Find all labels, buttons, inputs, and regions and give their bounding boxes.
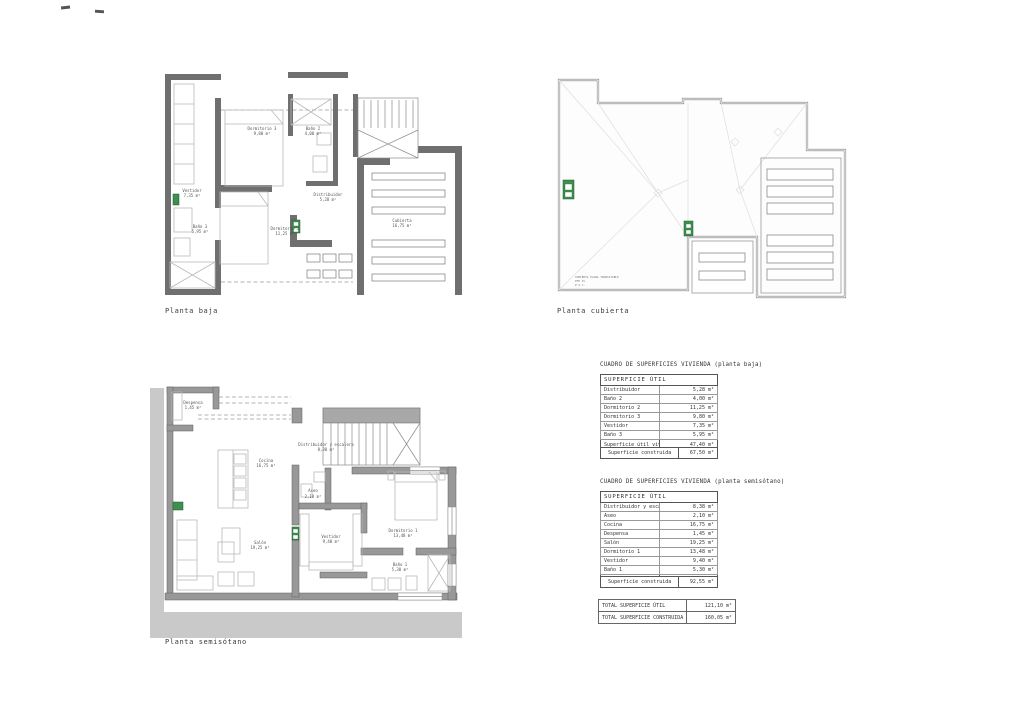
row-value: 7,35 m² xyxy=(659,422,718,431)
row-value: 13,48 m² xyxy=(659,548,718,557)
table-row: Dormitorio 2 11,25 m² xyxy=(601,404,718,413)
room-area: 7,35 m² xyxy=(184,193,201,198)
row-value: 11,25 m² xyxy=(659,404,718,413)
room-area: 4,00 m² xyxy=(305,131,322,136)
semisotano-table-title: CUADRO DE SUPERFICIES VIVIENDA (planta s… xyxy=(600,479,785,485)
baja-pergola-slats xyxy=(307,173,445,281)
room-label: Aseo xyxy=(308,488,318,493)
table-row: TOTAL SUPERFICIE ÚTIL 121,10 m² xyxy=(599,600,736,612)
semisotano-stairs xyxy=(323,408,420,465)
planta-semisotano-title: Planta semisótano xyxy=(165,638,247,646)
row-value: 5,30 m² xyxy=(659,566,718,575)
table-row: Despensa 1,45 m² xyxy=(601,530,718,539)
baja-table-title: CUADRO DE SUPERFICIES VIVIENDA (planta b… xyxy=(600,362,762,368)
row-value: 5,95 m² xyxy=(659,431,718,440)
row-value: 2,10 m² xyxy=(659,512,718,521)
total-construida-label: TOTAL SUPERFICIE CONSTRUIDA xyxy=(599,612,687,624)
room-area: 8,38 m² xyxy=(318,447,335,452)
row-value: 19,25 m² xyxy=(659,539,718,548)
row-label: Baño 2 xyxy=(601,395,660,404)
table-row: Distribuidor y escalera 8,38 m² xyxy=(601,503,718,512)
table-row: Vestidor 7,35 m² xyxy=(601,422,718,431)
row-label: Cocina xyxy=(601,521,660,530)
row-label: Baño 3 xyxy=(601,431,660,440)
room-area: 5,28 m² xyxy=(320,197,337,202)
semisotano-construida-table: Superficie construida 92,55 m² xyxy=(600,576,718,588)
row-label: Despensa xyxy=(601,530,660,539)
semisotano-areas-table: SUPERFICIE ÚTIL Distribuidor y escalera … xyxy=(600,491,718,586)
planta-cubierta-drawing: CUBIERTA PLANA TRANSITABLE PTE 4% P.V.C. xyxy=(555,75,855,300)
row-label: Distribuidor xyxy=(601,386,660,395)
room-area: 13,48 m² xyxy=(393,533,412,538)
table-row: Baño 1 5,30 m² xyxy=(601,566,718,575)
table-row: Aseo 2,10 m² xyxy=(601,512,718,521)
registration-mark-1 xyxy=(61,6,70,9)
table-row: TOTAL SUPERFICIE CONSTRUIDA 160,05 m² xyxy=(599,612,736,624)
room-area: 11,25 m² xyxy=(275,231,294,236)
row-value: 9,80 m² xyxy=(659,413,718,422)
semisotano-terrain xyxy=(150,388,462,638)
room-area: 19,25 m² xyxy=(250,545,269,550)
table-row: Dormitorio 1 13,48 m² xyxy=(601,548,718,557)
table-header-row: SUPERFICIE ÚTIL xyxy=(601,375,718,386)
table-row: Vestidor 9,40 m² xyxy=(601,557,718,566)
construida-label: Superficie construida xyxy=(601,448,679,459)
room-area: 2,10 m² xyxy=(305,494,322,499)
table-row: Baño 2 4,00 m² xyxy=(601,395,718,404)
baja-areas-table: SUPERFICIE ÚTIL Distribuidor 5,28 m² Bañ… xyxy=(600,374,718,451)
table-row: Salón 19,25 m² xyxy=(601,539,718,548)
table-row: Cocina 16,75 m² xyxy=(601,521,718,530)
table-row: Dormitorio 3 9,80 m² xyxy=(601,413,718,422)
row-label: Aseo xyxy=(601,512,660,521)
baja-stairs xyxy=(358,98,418,158)
room-area: 5,30 m² xyxy=(392,567,409,572)
room-area: 5,95 m² xyxy=(192,229,209,234)
row-value: 5,28 m² xyxy=(659,386,718,395)
total-util-value: 121,10 m² xyxy=(687,600,736,612)
planta-baja-title: Planta baja xyxy=(165,307,218,315)
total-construida-value: 160,05 m² xyxy=(687,612,736,624)
table-header: SUPERFICIE ÚTIL xyxy=(601,492,718,503)
registration-mark-2 xyxy=(95,10,104,13)
table-row: Superficie construida 92,55 m² xyxy=(601,577,718,588)
table-header: SUPERFICIE ÚTIL xyxy=(601,375,718,386)
roof-note-line: P.V.C. xyxy=(575,283,585,287)
room-area: 9,40 m² xyxy=(323,539,340,544)
drawing-sheet: Dormitorio 3 9,80 m² Baño 2 4,00 m² Vest… xyxy=(0,0,1024,722)
row-value: 4,00 m² xyxy=(659,395,718,404)
row-label: Distribuidor y escalera xyxy=(601,503,660,512)
row-label: Dormitorio 2 xyxy=(601,404,660,413)
room-area: 16,75 m² xyxy=(392,223,411,228)
table-row: Distribuidor 5,28 m² xyxy=(601,386,718,395)
table-row: Superficie construida 67,50 m² xyxy=(601,448,718,459)
row-label: Vestidor xyxy=(601,422,660,431)
construida-value: 92,55 m² xyxy=(679,577,718,588)
row-value: 1,45 m² xyxy=(659,530,718,539)
planta-baja-drawing: Dormitorio 3 9,80 m² Baño 2 4,00 m² Vest… xyxy=(150,70,480,305)
room-area: 16,75 m² xyxy=(256,463,275,468)
construida-label: Superficie construida xyxy=(601,577,679,588)
row-label: Dormitorio 1 xyxy=(601,548,660,557)
row-value: 16,75 m² xyxy=(659,521,718,530)
row-label: Baño 1 xyxy=(601,566,660,575)
construida-value: 67,50 m² xyxy=(679,448,718,459)
table-row: Baño 3 5,95 m² xyxy=(601,431,718,440)
room-area: 1,45 m² xyxy=(185,405,202,410)
row-label: Salón xyxy=(601,539,660,548)
row-value: 8,38 m² xyxy=(659,503,718,512)
row-value: 9,40 m² xyxy=(659,557,718,566)
table-header-row: SUPERFICIE ÚTIL xyxy=(601,492,718,503)
row-label: Dormitorio 3 xyxy=(601,413,660,422)
row-label: Vestidor xyxy=(601,557,660,566)
room-area: 9,80 m² xyxy=(254,131,271,136)
planta-semisotano-drawing: Despensa 1,45 m² Cocina 16,75 m² Distrib… xyxy=(148,372,493,657)
totals-table: TOTAL SUPERFICIE ÚTIL 121,10 m² TOTAL SU… xyxy=(598,599,736,624)
planta-cubierta-title: Planta cubierta xyxy=(557,307,629,315)
semisotano-dashed-guides xyxy=(198,397,291,419)
total-util-label: TOTAL SUPERFICIE ÚTIL xyxy=(599,600,687,612)
baja-construida-table: Superficie construida 67,50 m² xyxy=(600,447,718,459)
